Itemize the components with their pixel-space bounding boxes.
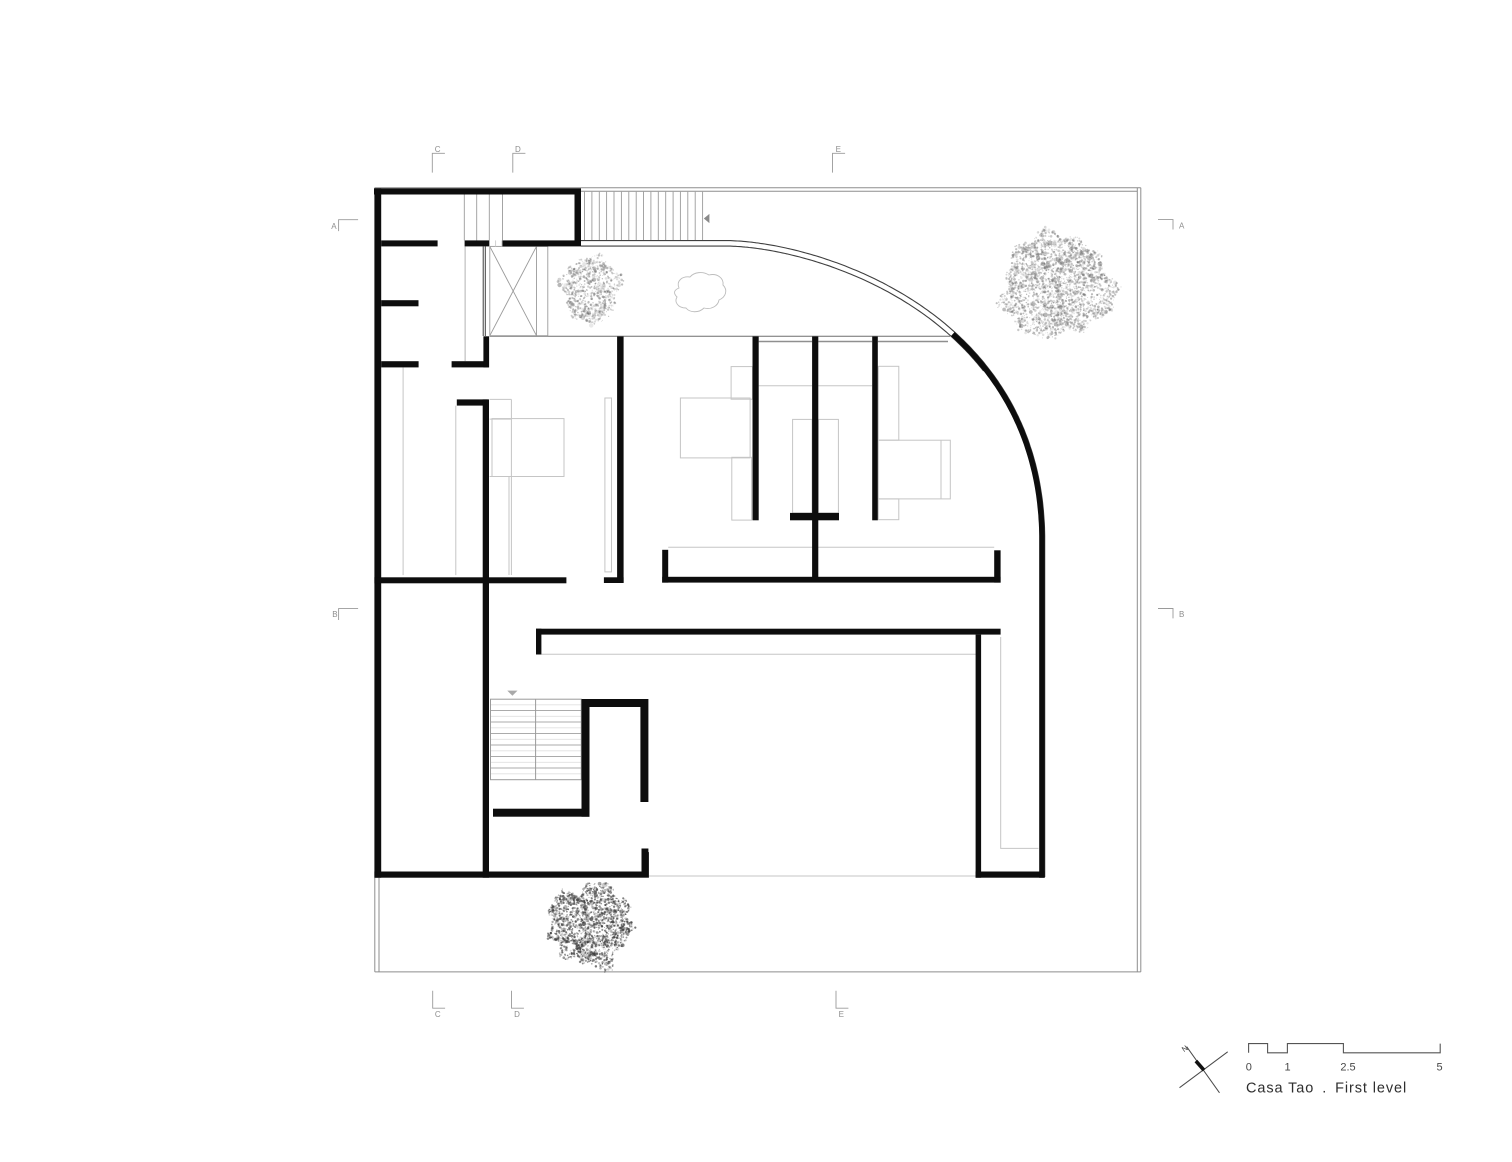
svg-text:B: B [332,610,337,619]
svg-text:D: D [514,1010,520,1019]
svg-text:D: D [515,145,521,154]
svg-text:A: A [1179,222,1185,231]
svg-text:B: B [1179,610,1184,619]
svg-text:E: E [839,1010,844,1019]
svg-text:A: A [331,222,337,231]
svg-text:E: E [836,145,841,154]
svg-text:C: C [435,145,441,154]
svg-text:C: C [435,1010,441,1019]
